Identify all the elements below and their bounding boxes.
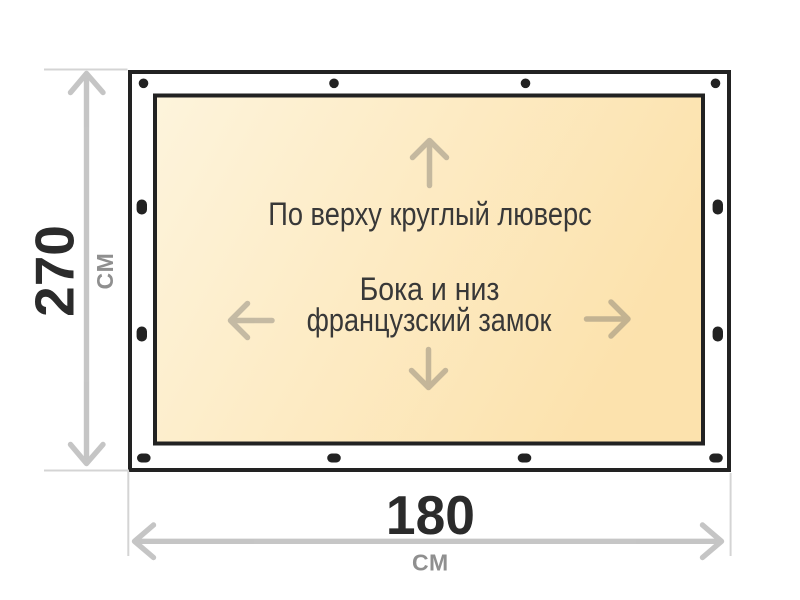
svg-text:180: 180: [386, 485, 475, 546]
svg-text:270: 270: [24, 225, 86, 317]
svg-text:СМ: СМ: [412, 550, 449, 576]
svg-text:СМ: СМ: [92, 252, 118, 289]
svg-text:По верху круглый люверс: По верху круглый люверс: [268, 197, 592, 233]
svg-text:французский замок: французский замок: [307, 303, 553, 339]
